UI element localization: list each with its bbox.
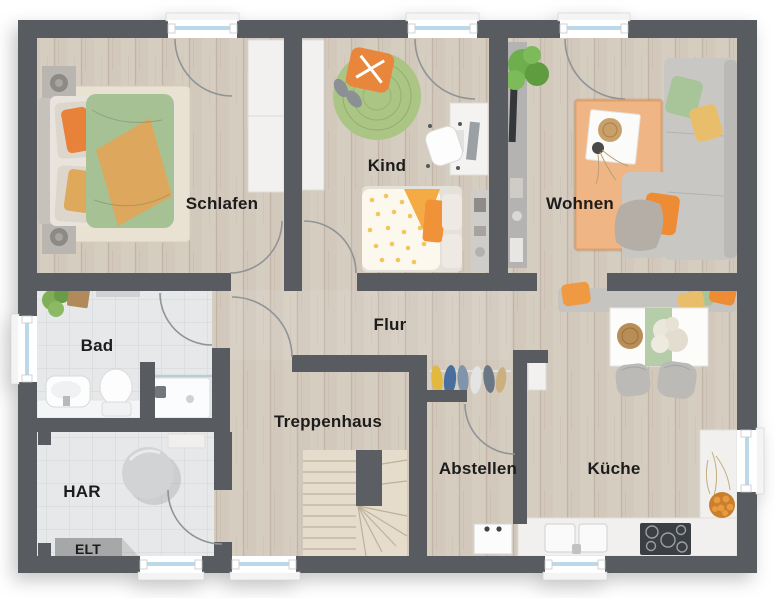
sofa-back [724,60,737,258]
chair-wheel [456,166,460,170]
room-label-schlafen: Schlafen [186,194,258,213]
bed-headboard [38,98,52,224]
flur-light [230,290,510,360]
har-shelf [168,434,205,448]
dining-chair [614,362,651,397]
boiler [122,447,174,499]
wall-middle-center [357,273,537,291]
room-label-wohnen: Wohnen [546,194,614,213]
wall-exterior-top [18,20,757,38]
wall-abstellen-kueche [513,350,527,524]
books [474,226,486,236]
stair-flight [303,450,407,556]
room-label-har: HAR [63,482,100,501]
window-kueche-bottom [543,556,607,580]
shelf-item [512,211,522,221]
gray-throw [615,199,664,250]
orange-pillow [561,281,592,307]
kitchen-sink [545,524,575,552]
lamp-top [55,79,63,87]
kitchen-sink [579,524,607,552]
floor-plan: Schlafen Kind Wohnen Bad Flur Treppenhau… [0,0,775,598]
wall-kind-wohnen [489,38,508,291]
wall-treppenhaus-right [409,355,427,556]
towel-rail [96,291,140,297]
window-kueche-right [737,428,764,494]
pillow [442,194,462,230]
vase [592,142,604,154]
wall-abstellen-top [427,390,467,402]
tray [598,118,622,142]
stairs [303,450,407,556]
books [474,198,486,212]
machine-knob [496,526,501,531]
basin-faucet [63,396,70,406]
room-label-flur: Flur [374,315,407,334]
shelf-item [475,247,485,257]
room-label-elt: ELT [75,541,101,557]
wall-har-right-upper [214,432,232,490]
entry-cabinet [528,362,546,390]
terrace-door-schlafen [166,13,239,38]
pillow [442,234,462,268]
building: Schlafen Kind Wohnen Bad Flur Treppenhau… [11,13,764,580]
har-pilaster [38,543,51,556]
terrace-door-wohnen [558,13,630,38]
wall-shower-stub [140,362,155,420]
room-label-kueche: Küche [588,459,641,478]
wall-exterior-bottom [18,556,757,573]
machine-knob [484,526,489,531]
washing-machine [474,524,512,554]
terrace-door-kind [406,13,479,38]
wall-entry-stub [513,350,548,363]
chair-wheel [426,164,430,168]
toilet-tank [102,402,131,416]
faucet [572,544,581,554]
wall-middle-right [607,273,737,291]
floor-plan-svg: Schlafen Kind Wohnen Bad Flur Treppenhau… [0,0,775,598]
room-label-kind: Kind [368,156,407,175]
tray [617,323,643,349]
toilet [100,369,132,405]
window-har [138,556,204,580]
shower-drain [186,395,194,403]
room-label-bad: Bad [81,336,114,355]
stair-void [356,450,382,506]
window-treppenhaus [230,556,300,580]
chair-wheel [428,124,432,128]
room-label-abstellen: Abstellen [439,459,517,478]
window-bad [11,314,37,384]
wall-middle-left [37,273,231,291]
lamp-top [55,233,63,241]
har-pilaster [38,432,51,445]
shelf-books [510,238,523,262]
room-label-treppenhaus: Treppenhaus [274,412,382,431]
wall-exterior-left [18,20,37,573]
wall-schlafen-kind [284,38,302,291]
kid-wardrobe [302,40,324,190]
wall-bad-har [37,418,230,432]
chair-wheel [458,122,462,126]
wall-treppenhaus-top [292,355,425,372]
shower-fixture [155,386,166,398]
shelf-books [510,178,523,198]
